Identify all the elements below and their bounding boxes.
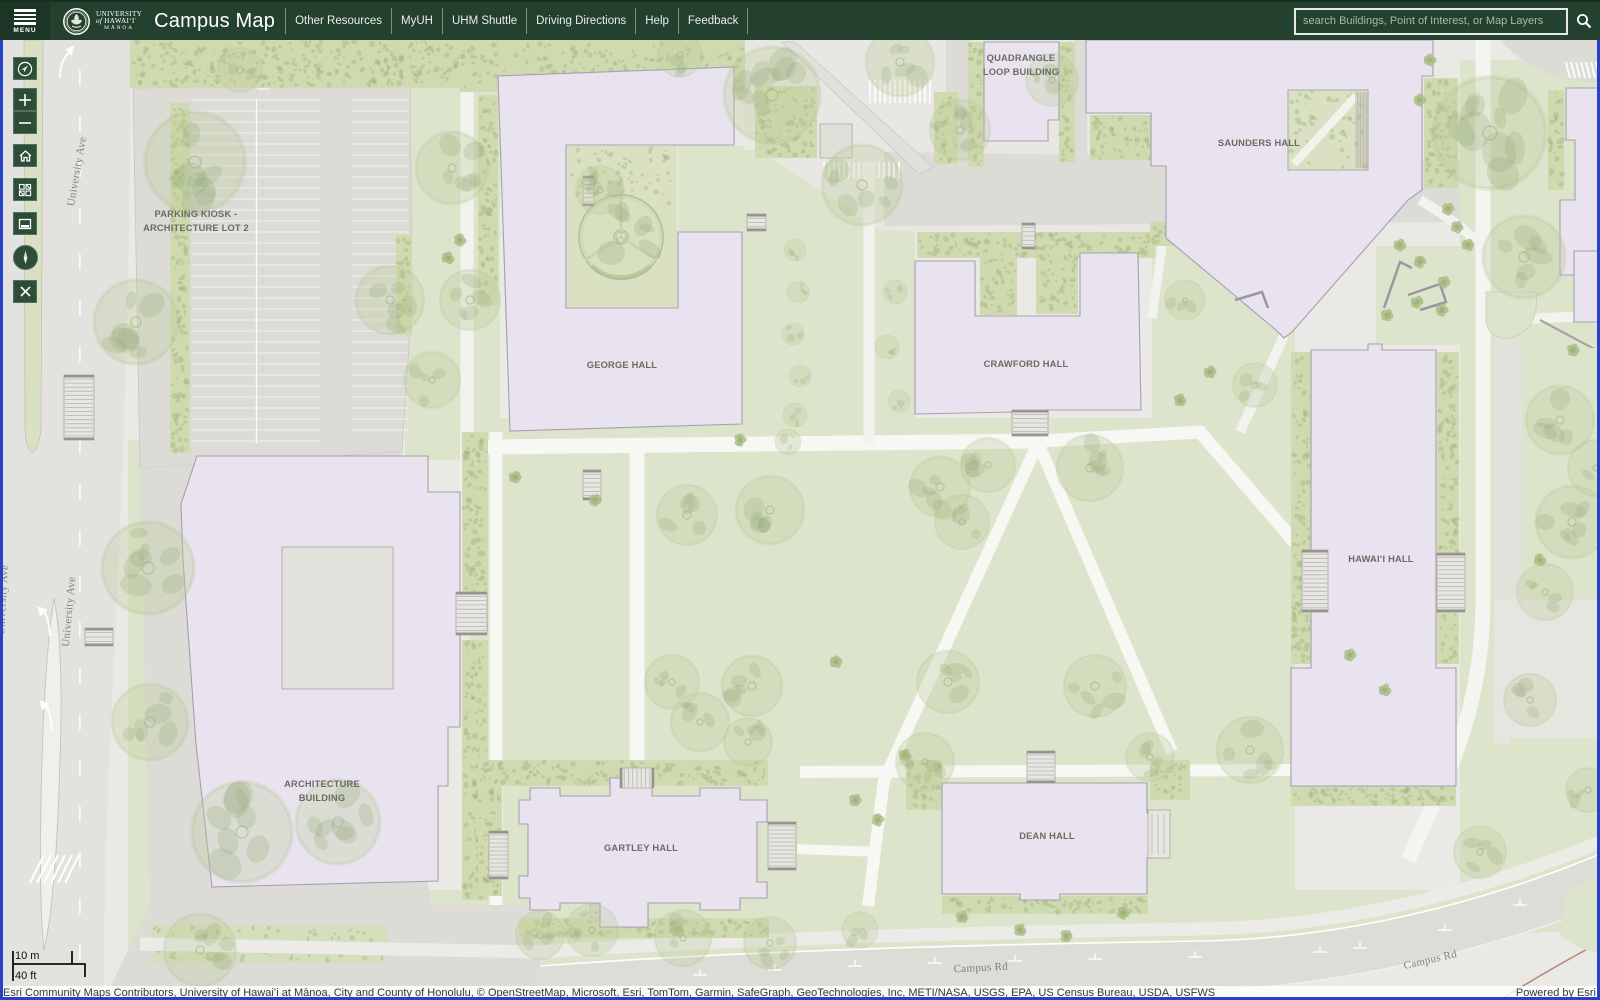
svg-text:QUADRANGLE: QUADRANGLE <box>987 53 1056 63</box>
svg-text:SAUNDERS HALL: SAUNDERS HALL <box>1218 138 1300 148</box>
svg-text:DEAN HALL: DEAN HALL <box>1019 831 1075 841</box>
svg-text:PARKING KIOSK -: PARKING KIOSK - <box>155 209 238 219</box>
svg-text:BUILDING: BUILDING <box>299 793 346 803</box>
svg-text:40 ft: 40 ft <box>15 970 36 982</box>
svg-text:LOOP BUILDING: LOOP BUILDING <box>983 67 1059 77</box>
svg-text:HAWAIʻI HALL: HAWAIʻI HALL <box>1348 554 1414 564</box>
svg-text:CRAWFORD HALL: CRAWFORD HALL <box>984 359 1069 369</box>
svg-text:GARTLEY HALL: GARTLEY HALL <box>604 843 678 853</box>
svg-text:ARCHITECTURE: ARCHITECTURE <box>284 779 360 789</box>
svg-text:10 m: 10 m <box>15 950 39 962</box>
svg-text:ARCHITECTURE LOT 2: ARCHITECTURE LOT 2 <box>143 223 249 233</box>
svg-text:GEORGE HALL: GEORGE HALL <box>587 360 657 370</box>
